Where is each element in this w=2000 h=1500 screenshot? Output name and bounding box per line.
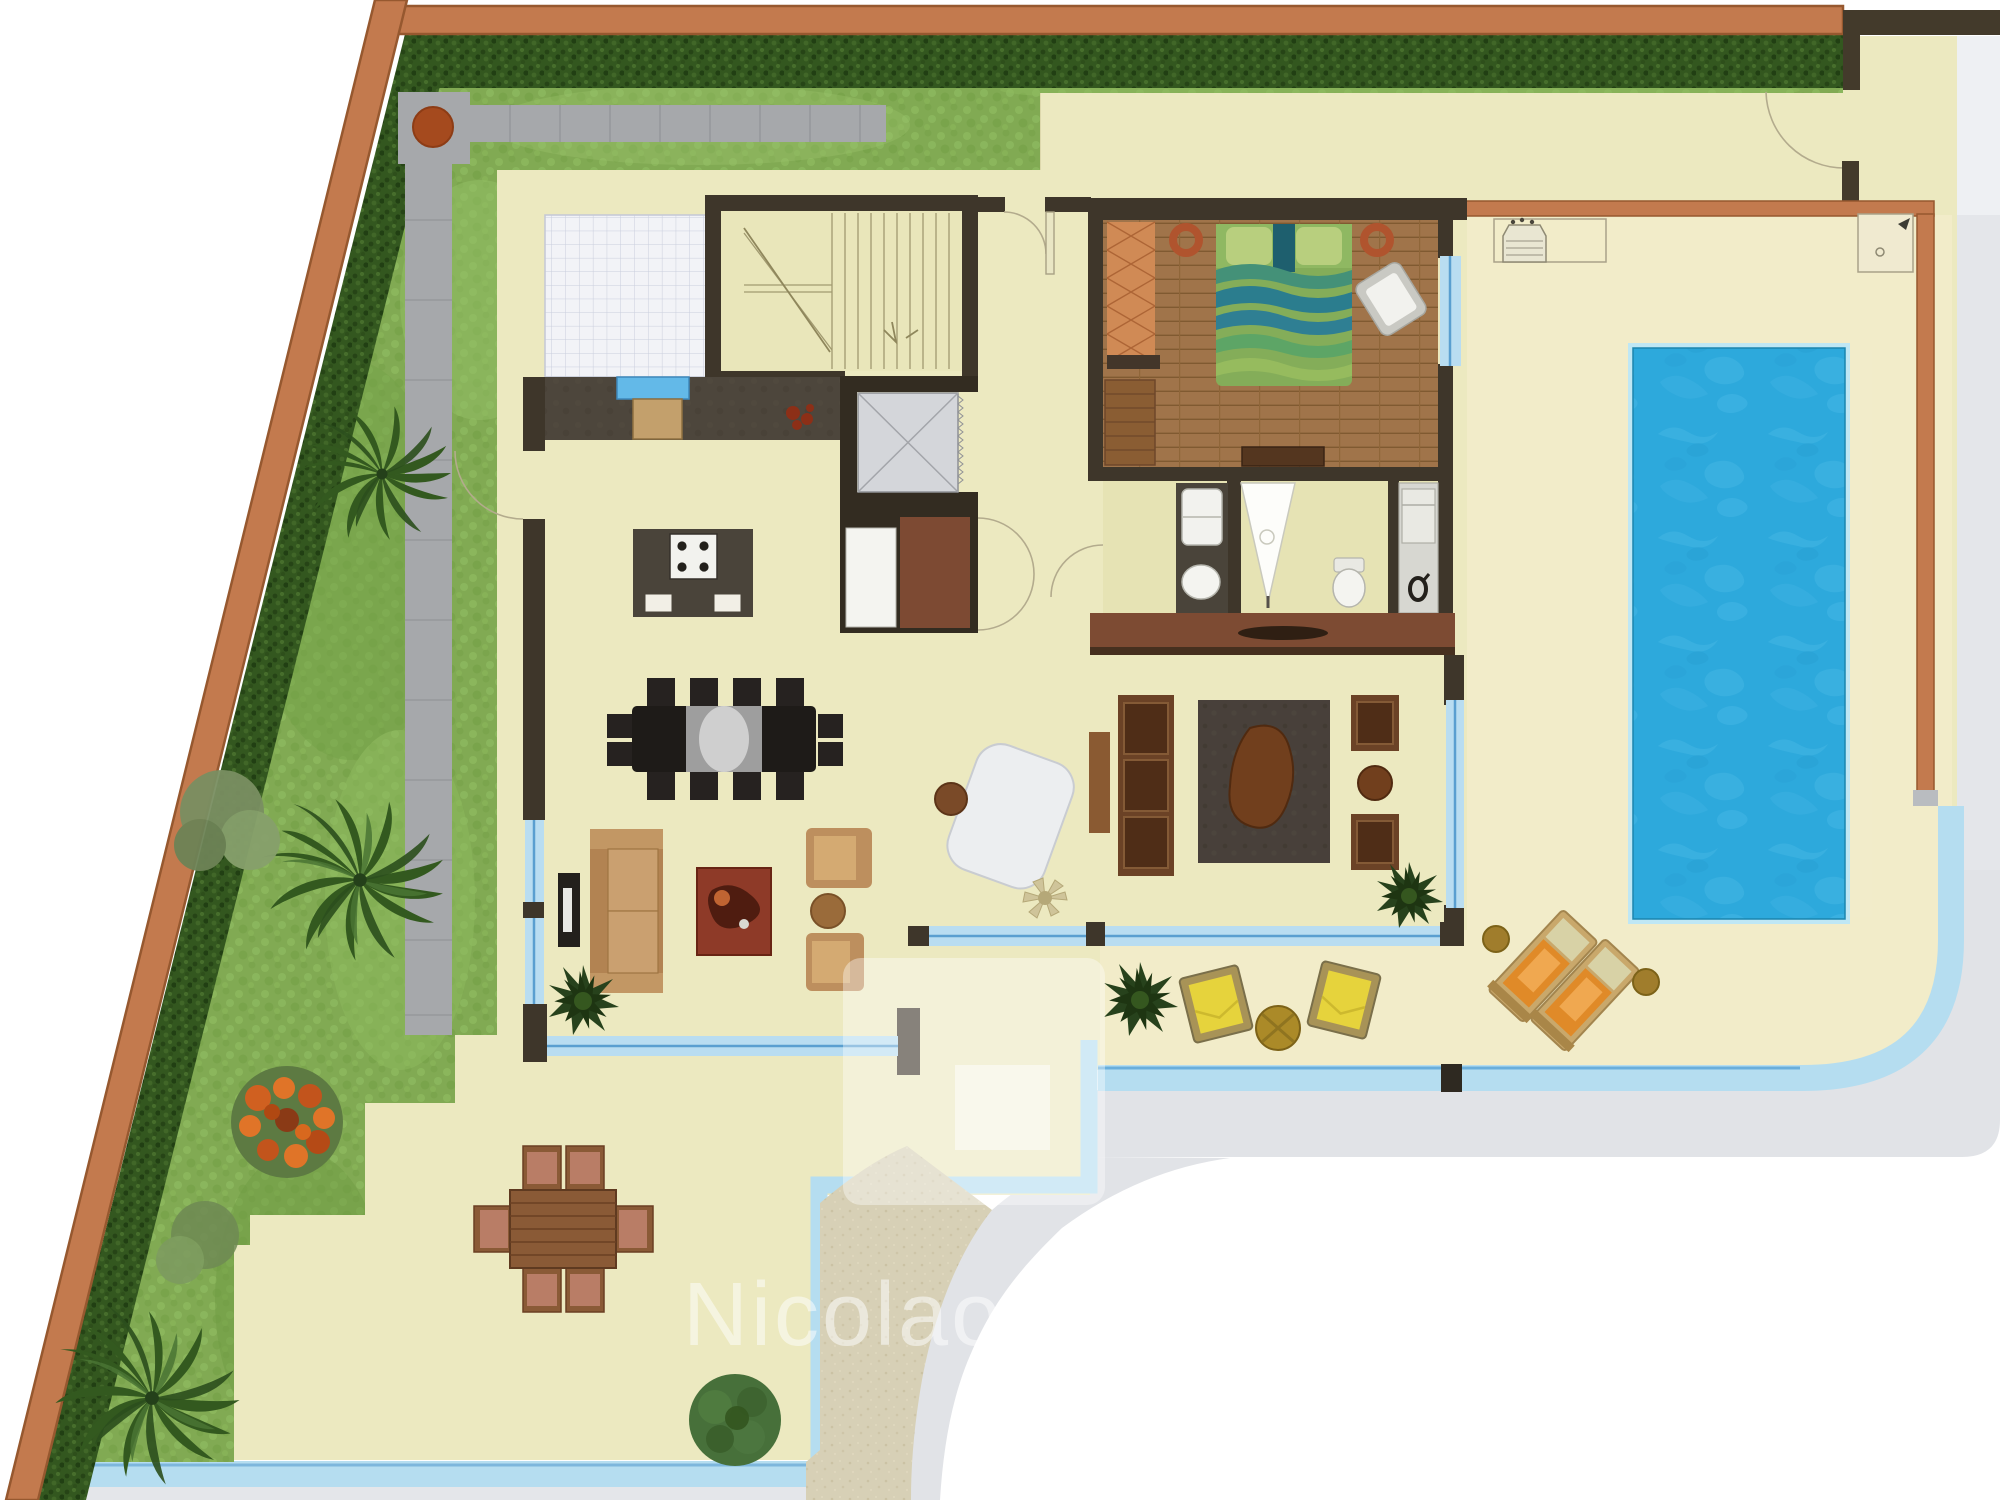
- svg-text:Nicolaou: Nicolaou: [683, 1265, 1057, 1365]
